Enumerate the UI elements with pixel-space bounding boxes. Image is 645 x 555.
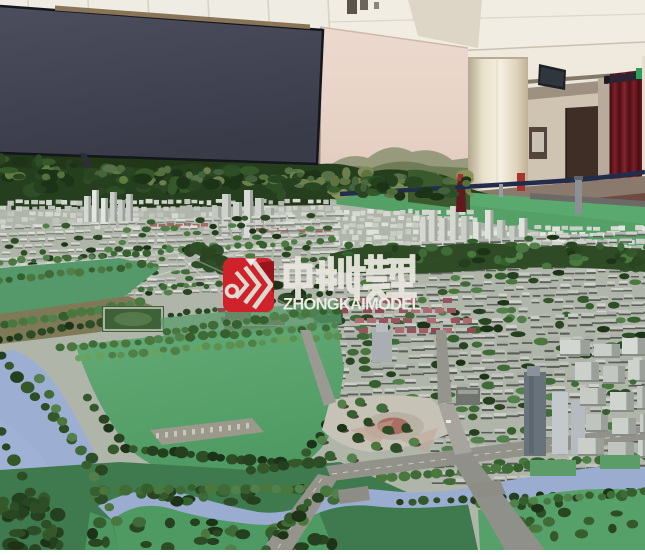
svg-text:ZHONGKAIMODEL: ZHONGKAIMODEL xyxy=(283,296,422,314)
